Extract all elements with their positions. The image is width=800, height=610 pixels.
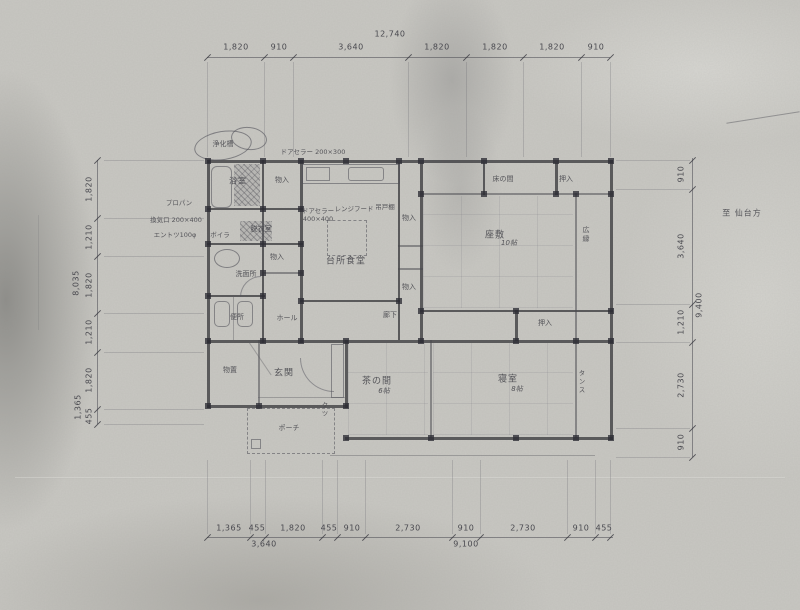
dim-label: 2,730 bbox=[510, 524, 535, 533]
wall-post bbox=[418, 158, 424, 164]
wall-tokonoma-row bbox=[420, 193, 613, 195]
wall-post bbox=[260, 206, 266, 212]
extension-line bbox=[616, 428, 690, 429]
bedroom-floor bbox=[433, 343, 573, 435]
wall-post bbox=[513, 308, 519, 314]
extension-line bbox=[616, 304, 690, 305]
wall-post bbox=[428, 435, 434, 441]
zashiki-floor bbox=[423, 196, 573, 308]
room-size-chanoma: 6帖 bbox=[378, 386, 389, 396]
label-shoes: クツ bbox=[319, 402, 329, 419]
room-label-chanoma: 茶の間 bbox=[362, 374, 392, 387]
dim-label: 1,210 bbox=[85, 224, 94, 249]
room-label-hall-closet: 物入 bbox=[270, 252, 284, 262]
wall-post bbox=[343, 435, 349, 441]
wall-post bbox=[608, 435, 614, 441]
room-label-boiler: ボイラ bbox=[210, 229, 230, 239]
dim-label: 910 bbox=[271, 43, 288, 52]
wall-block-col bbox=[300, 160, 303, 343]
room-label-utility-closet: 物入 bbox=[275, 175, 289, 185]
wall-bath-bottom bbox=[207, 208, 303, 210]
extension-line bbox=[207, 460, 208, 534]
room-label-dressing: 脱衣室 bbox=[251, 224, 272, 234]
wall-left-lower bbox=[207, 340, 210, 408]
floor-plan: 12,740 1,820 910 3,640 1,820 1,820 1,820… bbox=[0, 0, 800, 610]
wall-post bbox=[205, 241, 211, 247]
extension-line bbox=[337, 460, 338, 534]
scanned-floorplan-page: 12,740 1,820 910 3,640 1,820 1,820 1,820… bbox=[0, 0, 800, 610]
wall-zashiki-left bbox=[420, 163, 423, 343]
storage-diagonal bbox=[248, 342, 271, 376]
annotation-propane: プロパン bbox=[166, 197, 192, 207]
annotation-septic-tank: 浄化槽 bbox=[213, 139, 234, 149]
dim-label: 910 bbox=[458, 524, 475, 533]
dim-label: 2,730 bbox=[677, 372, 686, 397]
room-label-storage: 物置 bbox=[223, 365, 237, 375]
room-label-entrance: 玄関 bbox=[274, 366, 294, 379]
wall-post bbox=[298, 158, 304, 164]
dining-table bbox=[327, 220, 367, 256]
wall-post bbox=[298, 270, 304, 276]
washbasin bbox=[214, 249, 240, 268]
dim-label: 455 bbox=[249, 524, 266, 533]
wall-post bbox=[553, 191, 559, 197]
wall-chanoma-divider bbox=[430, 340, 432, 438]
wall-post bbox=[418, 338, 424, 344]
wall-post bbox=[513, 338, 519, 344]
wall-post bbox=[205, 206, 211, 212]
wall-post bbox=[418, 308, 424, 314]
dim-total-top: 12,740 bbox=[375, 30, 406, 39]
wall-post bbox=[298, 206, 304, 212]
extension-line bbox=[293, 62, 294, 157]
label-tansu: タンス bbox=[576, 369, 586, 395]
wall-post bbox=[481, 191, 487, 197]
wall-post bbox=[573, 435, 579, 441]
extension-line bbox=[104, 218, 204, 219]
room-label-bedroom: 寝室 bbox=[498, 372, 518, 385]
room-label-kitchen-closet-lower: 物入 bbox=[402, 282, 416, 292]
dim-label: 1,820 bbox=[85, 272, 94, 297]
extension-line bbox=[616, 457, 690, 458]
extension-line bbox=[322, 460, 323, 534]
dim-subtotal-right: 9,100 bbox=[453, 540, 478, 549]
wall-post bbox=[608, 338, 614, 344]
room-label-kitchen-closet-upper: 物入 bbox=[402, 213, 416, 223]
wall-oshiire-left bbox=[515, 310, 518, 341]
room-size-bedroom: 8帖 bbox=[511, 384, 522, 394]
extension-line bbox=[616, 160, 690, 161]
wall-post bbox=[553, 158, 559, 164]
extension-line bbox=[610, 460, 611, 534]
wall-post bbox=[205, 403, 211, 409]
room-label-toilet: 便所 bbox=[230, 312, 244, 322]
extension-line bbox=[104, 256, 204, 257]
wall-post bbox=[205, 293, 211, 299]
bathtub bbox=[211, 166, 232, 208]
wall-post bbox=[260, 158, 266, 164]
annotation-door-note-top: ドアセラー 200×300 bbox=[281, 146, 346, 156]
annotation-chimney: エントツ100φ bbox=[154, 229, 197, 239]
room-label-washroom: 洗面所 bbox=[236, 269, 257, 279]
room-label-bath: 浴室 bbox=[229, 176, 247, 187]
dim-line-bottom bbox=[207, 537, 613, 538]
extension-line bbox=[365, 460, 366, 534]
wall-post bbox=[573, 338, 579, 344]
dim-label: 2,730 bbox=[395, 524, 420, 533]
porch-post bbox=[251, 439, 261, 449]
wall-post bbox=[298, 241, 304, 247]
extension-line bbox=[250, 460, 251, 534]
wall-post bbox=[343, 403, 349, 409]
extension-line bbox=[567, 460, 568, 534]
wall-post bbox=[260, 293, 266, 299]
room-label-tokonoma: 床の間 bbox=[493, 174, 514, 184]
dim-label: 455 bbox=[321, 524, 338, 533]
extension-line bbox=[581, 62, 582, 157]
wall-dressing-bottom bbox=[207, 243, 303, 245]
annotation-hanging-cupboard: 吊戸棚 bbox=[375, 201, 395, 211]
dim-label: 1,365 bbox=[216, 524, 241, 533]
dim-label: 910 bbox=[677, 434, 686, 451]
dim-label: 1,820 bbox=[85, 367, 94, 392]
kitchen-stove bbox=[306, 167, 330, 181]
wall-post bbox=[298, 338, 304, 344]
room-label-hiroen: 広縁 bbox=[581, 226, 591, 244]
annotation-vent: 換気口 200×400 bbox=[150, 214, 202, 224]
door-swing-washroom bbox=[240, 276, 261, 297]
wall-post bbox=[608, 191, 614, 197]
dim-label: 910 bbox=[588, 43, 605, 52]
wall-kitchen-closet-b bbox=[398, 268, 423, 270]
extension-line bbox=[408, 62, 409, 157]
wall-post bbox=[608, 308, 614, 314]
door-swing-entrance bbox=[300, 358, 334, 392]
extension-line bbox=[610, 62, 611, 157]
room-size-zashiki: 10帖 bbox=[501, 238, 517, 248]
wall-corridor-bottom bbox=[207, 340, 613, 343]
wall-post bbox=[343, 338, 349, 344]
dim-subtotal-left: 3,640 bbox=[251, 540, 276, 549]
dim-tick bbox=[94, 421, 101, 428]
dim-label: 1,820 bbox=[85, 176, 94, 201]
room-label-corridor: 廊下 bbox=[383, 310, 397, 320]
dim-line-left bbox=[97, 160, 98, 424]
dim-label: 1,820 bbox=[223, 43, 248, 52]
wall-bath-col bbox=[262, 160, 264, 343]
wall-post bbox=[205, 338, 211, 344]
extension-line bbox=[480, 460, 481, 534]
dim-label: 1,820 bbox=[280, 524, 305, 533]
wall-post bbox=[298, 298, 304, 304]
extension-line bbox=[104, 424, 204, 425]
wall-post bbox=[608, 158, 614, 164]
dim-label: 1,820 bbox=[424, 43, 449, 52]
dim-label: 910 bbox=[573, 524, 590, 533]
extension-line bbox=[265, 460, 266, 534]
dim-label: 1,365 bbox=[74, 394, 83, 419]
dim-total-right: 9,400 bbox=[695, 292, 704, 317]
wall-post bbox=[573, 191, 579, 197]
dim-line-right bbox=[692, 158, 693, 457]
wall-post bbox=[481, 158, 487, 164]
wall-closet-bottom bbox=[262, 272, 303, 274]
extension-line bbox=[523, 62, 524, 157]
wall-post bbox=[396, 298, 402, 304]
dim-label: 1,820 bbox=[539, 43, 564, 52]
dim-label: 910 bbox=[677, 166, 686, 183]
dim-total-left: 8,035 bbox=[72, 270, 81, 295]
extension-line bbox=[616, 189, 690, 190]
dim-label: 455 bbox=[85, 408, 94, 425]
wall-post bbox=[205, 158, 211, 164]
dim-label: 1,210 bbox=[677, 309, 686, 334]
extension-line bbox=[466, 62, 467, 157]
wall-post bbox=[260, 241, 266, 247]
extension-line bbox=[104, 160, 204, 161]
wall-post bbox=[260, 270, 266, 276]
wall-post bbox=[256, 403, 262, 409]
wall-kitchen-bottom bbox=[300, 300, 400, 302]
wall-left-upper bbox=[207, 160, 210, 343]
wall-post bbox=[343, 158, 349, 164]
dim-label: 1,210 bbox=[85, 319, 94, 344]
dim-label: 910 bbox=[344, 524, 361, 533]
wall-kitchen-closet-a bbox=[398, 245, 423, 247]
annotation-range-hood: レンジフード bbox=[335, 203, 374, 213]
annotation-direction: 至 仙台方 bbox=[722, 208, 762, 219]
kitchen-sink bbox=[348, 167, 384, 181]
wall-kitchen-right bbox=[398, 163, 400, 340]
extension-line bbox=[616, 342, 690, 343]
extension-line bbox=[595, 460, 596, 534]
toilet-fixture bbox=[214, 301, 230, 327]
extension-line bbox=[264, 62, 265, 157]
eaves-line bbox=[330, 455, 595, 456]
wall-post bbox=[513, 435, 519, 441]
wall-right bbox=[610, 160, 613, 440]
extension-line bbox=[104, 352, 204, 353]
dim-label: 3,640 bbox=[677, 233, 686, 258]
room-label-oshiire-top: 押入 bbox=[559, 174, 573, 184]
wall-post bbox=[396, 158, 402, 164]
dim-label: 1,820 bbox=[482, 43, 507, 52]
dim-label: 3,640 bbox=[338, 43, 363, 52]
wall-hiroen-divider bbox=[575, 193, 577, 340]
extension-line bbox=[207, 62, 208, 157]
extension-line bbox=[452, 460, 453, 534]
extension-line bbox=[104, 409, 204, 410]
wall-post bbox=[418, 191, 424, 197]
extension-line bbox=[104, 313, 204, 314]
dim-tick bbox=[689, 454, 696, 461]
room-label-oshiire-mid: 押入 bbox=[538, 318, 552, 328]
room-label-hall: ホール bbox=[277, 313, 298, 323]
wall-post bbox=[260, 338, 266, 344]
room-label-kitchen: 台所食堂 bbox=[326, 254, 366, 267]
room-label-porch: ポーチ bbox=[279, 423, 300, 433]
